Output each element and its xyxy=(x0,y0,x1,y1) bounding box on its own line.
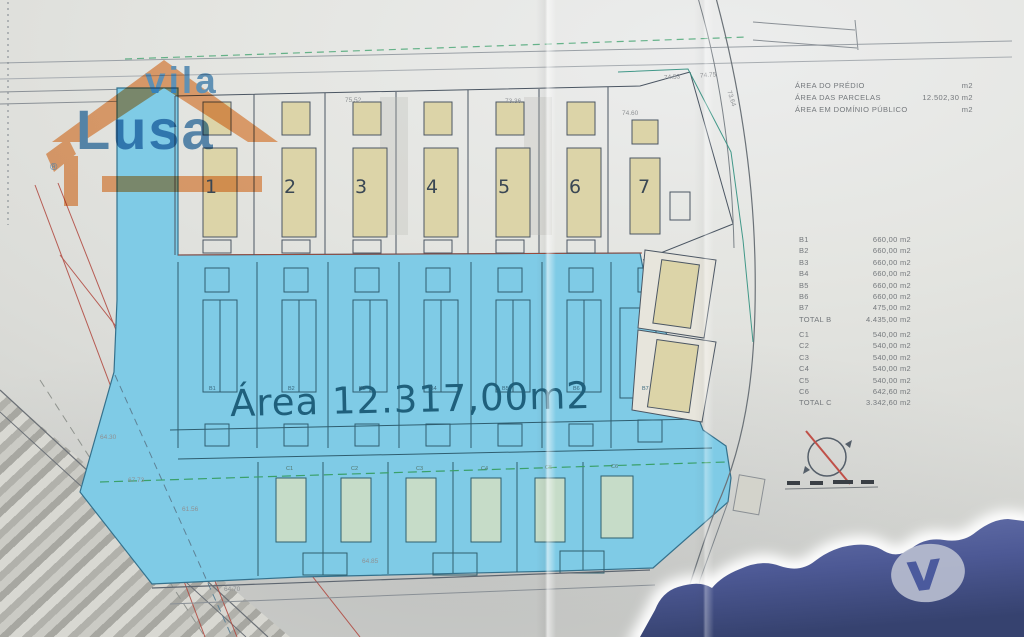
b-row-value: 660,00 m2 xyxy=(873,268,911,279)
plot-label-c6: C6 xyxy=(611,464,618,470)
dimension-label: 64.85 xyxy=(362,558,378,565)
b-row-value: 660,00 m2 xyxy=(873,280,911,291)
scanned-site-plan: vila Lusa ® Área 12.317,00m2 1 2 3 4 5 6… xyxy=(0,0,1024,637)
c-row-label: C3 xyxy=(799,352,809,363)
b-row-label: B5 xyxy=(799,280,809,291)
b-row-value: 660,00 m2 xyxy=(873,257,911,268)
plot-label-c5: C5 xyxy=(545,465,552,471)
c-row-value: 642,60 m2 xyxy=(873,386,911,397)
b-row-value: 660,00 m2 xyxy=(873,291,911,302)
b-row-value: 475,00 m2 xyxy=(873,302,911,313)
b-row-label: B6 xyxy=(799,291,809,302)
dimension-label: 64.30 xyxy=(100,434,116,441)
c-row-label: C2 xyxy=(799,340,809,351)
dimension-label: 73.36 xyxy=(505,98,521,105)
photo-silhouette xyxy=(640,519,1024,637)
plot-label-c1: C1 xyxy=(286,466,293,472)
summary-label: ÁREA DO PRÉDIO xyxy=(795,80,865,92)
c-row-label: C6 xyxy=(799,386,809,397)
scale-bar xyxy=(785,480,878,489)
c-row-value: 540,00 m2 xyxy=(873,340,911,351)
lot-number-5: 5 xyxy=(498,176,510,198)
parcel-table-c: C1540,00 m2 C2540,00 m2 C3540,00 m2 C454… xyxy=(799,329,911,409)
dimension-label: 75.52 xyxy=(345,97,361,104)
c-row-value: 540,00 m2 xyxy=(873,329,911,340)
plot-label-c4: C4 xyxy=(481,466,488,472)
b-total-value: 4.435,00 m2 xyxy=(866,314,911,325)
c-total-label: TOTAL C xyxy=(799,397,832,408)
b-total-label: TOTAL B xyxy=(799,314,831,325)
watermark-word2: Lusa xyxy=(76,97,215,162)
parcel-table-b: B1660,00 m2 B2660,00 m2 B3660,00 m2 B466… xyxy=(799,234,911,325)
dimension-label: 64.70 xyxy=(224,586,240,593)
lot-number-3: 3 xyxy=(355,176,367,198)
b-row-label: B4 xyxy=(799,268,809,279)
plot-label-b6: B6 xyxy=(573,386,580,392)
summary-row: ÁREA DO PRÉDIO m2 xyxy=(795,80,973,92)
plot-label-b7: B7 xyxy=(642,386,649,392)
c-row-value: 540,00 m2 xyxy=(873,363,911,374)
lot-number-1: 1 xyxy=(205,176,217,198)
dimension-label: 74.60 xyxy=(622,110,638,117)
summary-value: m2 xyxy=(962,80,973,92)
b-row-value: 660,00 m2 xyxy=(873,245,911,256)
area-summary-table: ÁREA DO PRÉDIO m2 ÁREA DAS PARCELAS 12.5… xyxy=(795,80,973,116)
lot-number-4: 4 xyxy=(426,176,438,198)
b-row-label: B2 xyxy=(799,245,809,256)
b-row-label: B1 xyxy=(799,234,809,245)
summary-label: ÁREA DAS PARCELAS xyxy=(795,92,881,104)
corner-logo-v: v xyxy=(905,538,942,605)
dimension-label: 74.53 xyxy=(664,73,681,81)
c-total-value: 3.342,60 m2 xyxy=(866,397,911,408)
plot-label-b3: B3 xyxy=(359,386,366,392)
summary-value: 12.502,30 m2 xyxy=(922,92,973,104)
plot-label-b1: B1 xyxy=(209,386,216,392)
plot-label-b2: B2 xyxy=(288,386,295,392)
c-row-value: 540,00 m2 xyxy=(873,375,911,386)
vila-lusa-watermark: vila Lusa ® xyxy=(46,50,292,212)
plot-label-c2: C2 xyxy=(351,466,358,472)
registered-mark: ® xyxy=(50,162,57,173)
plot-label-b5: B5 xyxy=(502,386,509,392)
b-row-label: B3 xyxy=(799,257,809,268)
dimension-label: 74.75 xyxy=(700,71,717,79)
c-row-label: C5 xyxy=(799,375,809,386)
dimension-label: 67.73 xyxy=(128,477,144,484)
plot-label-b4: B4 xyxy=(430,386,437,392)
lot-number-7: 7 xyxy=(638,176,650,198)
lot-number-6: 6 xyxy=(569,176,581,198)
b-row-label: B7 xyxy=(799,302,809,313)
watermark-word1: vila xyxy=(145,60,219,102)
c-row-label: C1 xyxy=(799,329,809,340)
c-row-value: 540,00 m2 xyxy=(873,352,911,363)
b-row-value: 660,00 m2 xyxy=(873,234,911,245)
summary-row: ÁREA DAS PARCELAS 12.502,30 m2 xyxy=(795,92,973,104)
lot-number-2: 2 xyxy=(284,176,296,198)
c-row-label: C4 xyxy=(799,363,809,374)
dimension-label: 61.56 xyxy=(182,506,198,513)
summary-value: m2 xyxy=(962,104,973,116)
summary-row: ÁREA EM DOMÍNIO PÚBLICO m2 xyxy=(795,104,973,116)
total-area-label: Área 12.317,00m2 xyxy=(230,374,592,425)
north-symbol xyxy=(803,431,852,484)
summary-label: ÁREA EM DOMÍNIO PÚBLICO xyxy=(795,104,908,116)
plot-label-c3: C3 xyxy=(416,466,423,472)
